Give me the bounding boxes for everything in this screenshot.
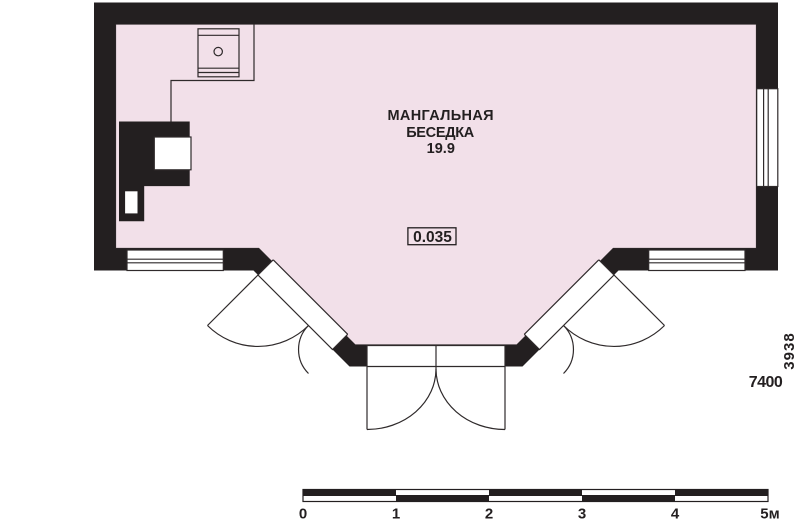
svg-text:3: 3 bbox=[578, 506, 586, 523]
svg-text:19.9: 19.9 bbox=[427, 141, 455, 157]
svg-text:5м: 5м bbox=[760, 506, 779, 523]
svg-text:7400: 7400 bbox=[749, 374, 783, 391]
svg-text:БЕСЕДКА: БЕСЕДКА bbox=[406, 125, 475, 141]
svg-text:0: 0 bbox=[299, 506, 307, 523]
svg-text:1: 1 bbox=[392, 506, 400, 523]
svg-text:МАНГАЛЬНАЯ: МАНГАЛЬНАЯ bbox=[387, 108, 493, 124]
svg-text:4: 4 bbox=[671, 506, 680, 523]
svg-text:0.035: 0.035 bbox=[413, 229, 452, 246]
svg-text:2: 2 bbox=[485, 506, 493, 523]
svg-text:3938: 3938 bbox=[781, 332, 798, 369]
